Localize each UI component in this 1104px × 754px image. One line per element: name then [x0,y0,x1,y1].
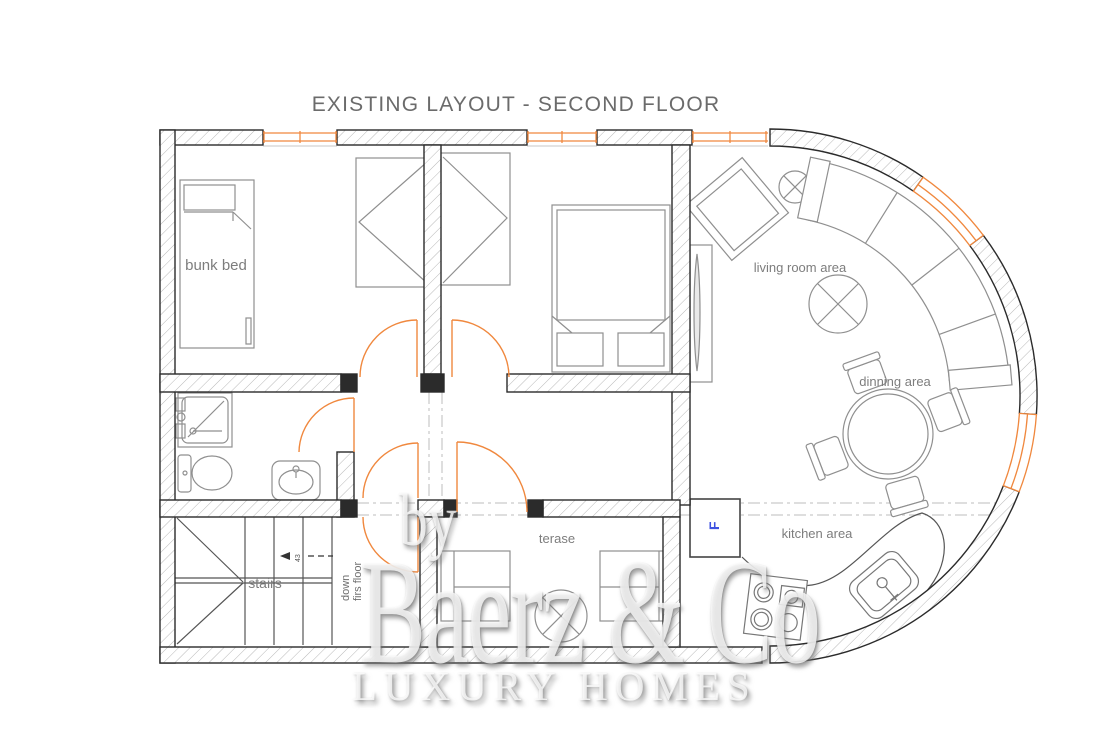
door-terrace [457,442,527,512]
label-stairs-mark: 43 [295,554,302,562]
wall-stairs-top [160,500,341,517]
double-bed [552,205,670,372]
label-dining: dinning area [859,374,931,389]
label-terrace: terase [539,531,575,546]
window-top-1 [263,131,337,146]
dining-chair [883,475,929,517]
door-stairs-upper [363,443,418,498]
wall-bunk-bath [160,374,341,392]
page-title: EXISTING LAYOUT - SECOND FLOOR [312,93,721,116]
wall-bedroom-bottom [507,374,690,392]
wall-hall-a [418,500,444,517]
label-kitchen: kitchen area [782,526,854,541]
wall-terrace-divider [420,517,437,647]
label-stairs-note-2: firs floor [352,562,364,601]
label-living-room: living room area [754,260,847,275]
wall-cap [421,374,444,392]
label-fridge: F [706,521,722,530]
wall-top-2 [337,130,527,145]
wall-cap [444,500,457,517]
window-curve-lower [1003,413,1036,491]
floor-plan-canvas: EXISTING LAYOUT - SECOND FLOOR [0,0,1104,754]
wall-cap [528,500,543,517]
wall-terrace-right [663,517,680,647]
wall-cap [341,374,357,392]
wall-top-3 [597,130,692,145]
coffee-table-round [809,275,867,333]
floor-plan-page: { "title": "EXISTING LAYOUT - SECOND FLO… [0,0,1104,754]
wall-mirror [690,245,712,382]
wall-center [424,145,441,374]
doors [299,320,527,572]
door-stairs-lower [363,517,418,572]
shower [176,393,232,447]
wall-cap [341,500,357,517]
label-stairs-note-1: down [340,575,352,601]
label-stairs: stairs [248,575,281,591]
door-bedroom [452,320,509,377]
terrace-table-round [535,590,587,642]
sunbed-right [600,551,673,621]
dining-table [843,389,933,479]
stove [744,574,808,640]
label-bunk-room: bunk bed [185,257,247,274]
door-bunk-room [360,320,417,377]
sunbed-left [441,551,510,621]
window-top-3 [692,131,768,146]
wall-left [160,130,175,663]
stairs-direction-arrow [280,552,333,560]
wardrobe-bunk-room [356,158,427,287]
toilet [178,455,232,492]
wall-terrace-top [543,500,680,517]
window-top-2 [527,131,597,146]
wall-bottom [160,647,762,663]
bathroom-sink [272,461,320,500]
wardrobe-bedroom [440,153,510,285]
wall-bedroom-right [672,145,690,505]
door-bathroom [299,398,354,452]
